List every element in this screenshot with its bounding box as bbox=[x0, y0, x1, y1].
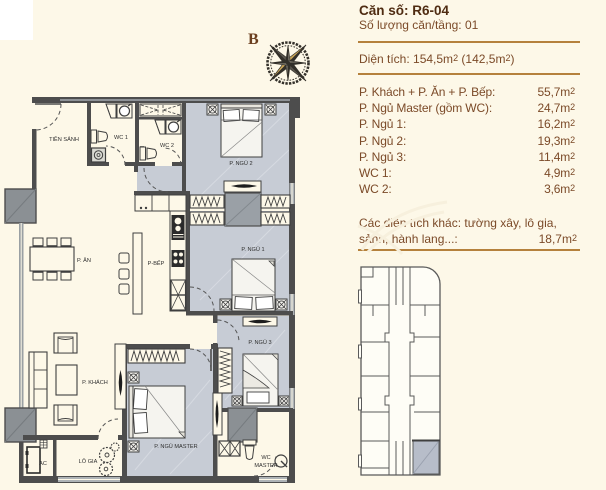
svg-text:P-BẾP: P-BẾP bbox=[148, 260, 165, 267]
svg-text:WC 2: WC 2 bbox=[160, 143, 174, 149]
svg-text:WC: WC bbox=[261, 455, 270, 461]
svg-text:P. NGỦ 3: P. NGỦ 3 bbox=[248, 339, 271, 346]
svg-text:MASTER: MASTER bbox=[254, 463, 277, 469]
svg-text:P. NGỦ 2: P. NGỦ 2 bbox=[229, 160, 252, 167]
svg-text:TIỀN SẢNH: TIỀN SẢNH bbox=[49, 136, 79, 143]
svg-text:P. NGỦ MASTER: P. NGỦ MASTER bbox=[154, 443, 197, 450]
svg-text:P. KHÁCH: P. KHÁCH bbox=[82, 379, 108, 386]
svg-text:AC: AC bbox=[39, 461, 47, 467]
svg-text:LÔ GIA: LÔ GIA bbox=[79, 458, 98, 465]
svg-text:P. NGỦ 1: P. NGỦ 1 bbox=[241, 246, 264, 253]
svg-text:P. ĂN: P. ĂN bbox=[77, 257, 91, 264]
svg-text:WC 1: WC 1 bbox=[114, 135, 128, 141]
